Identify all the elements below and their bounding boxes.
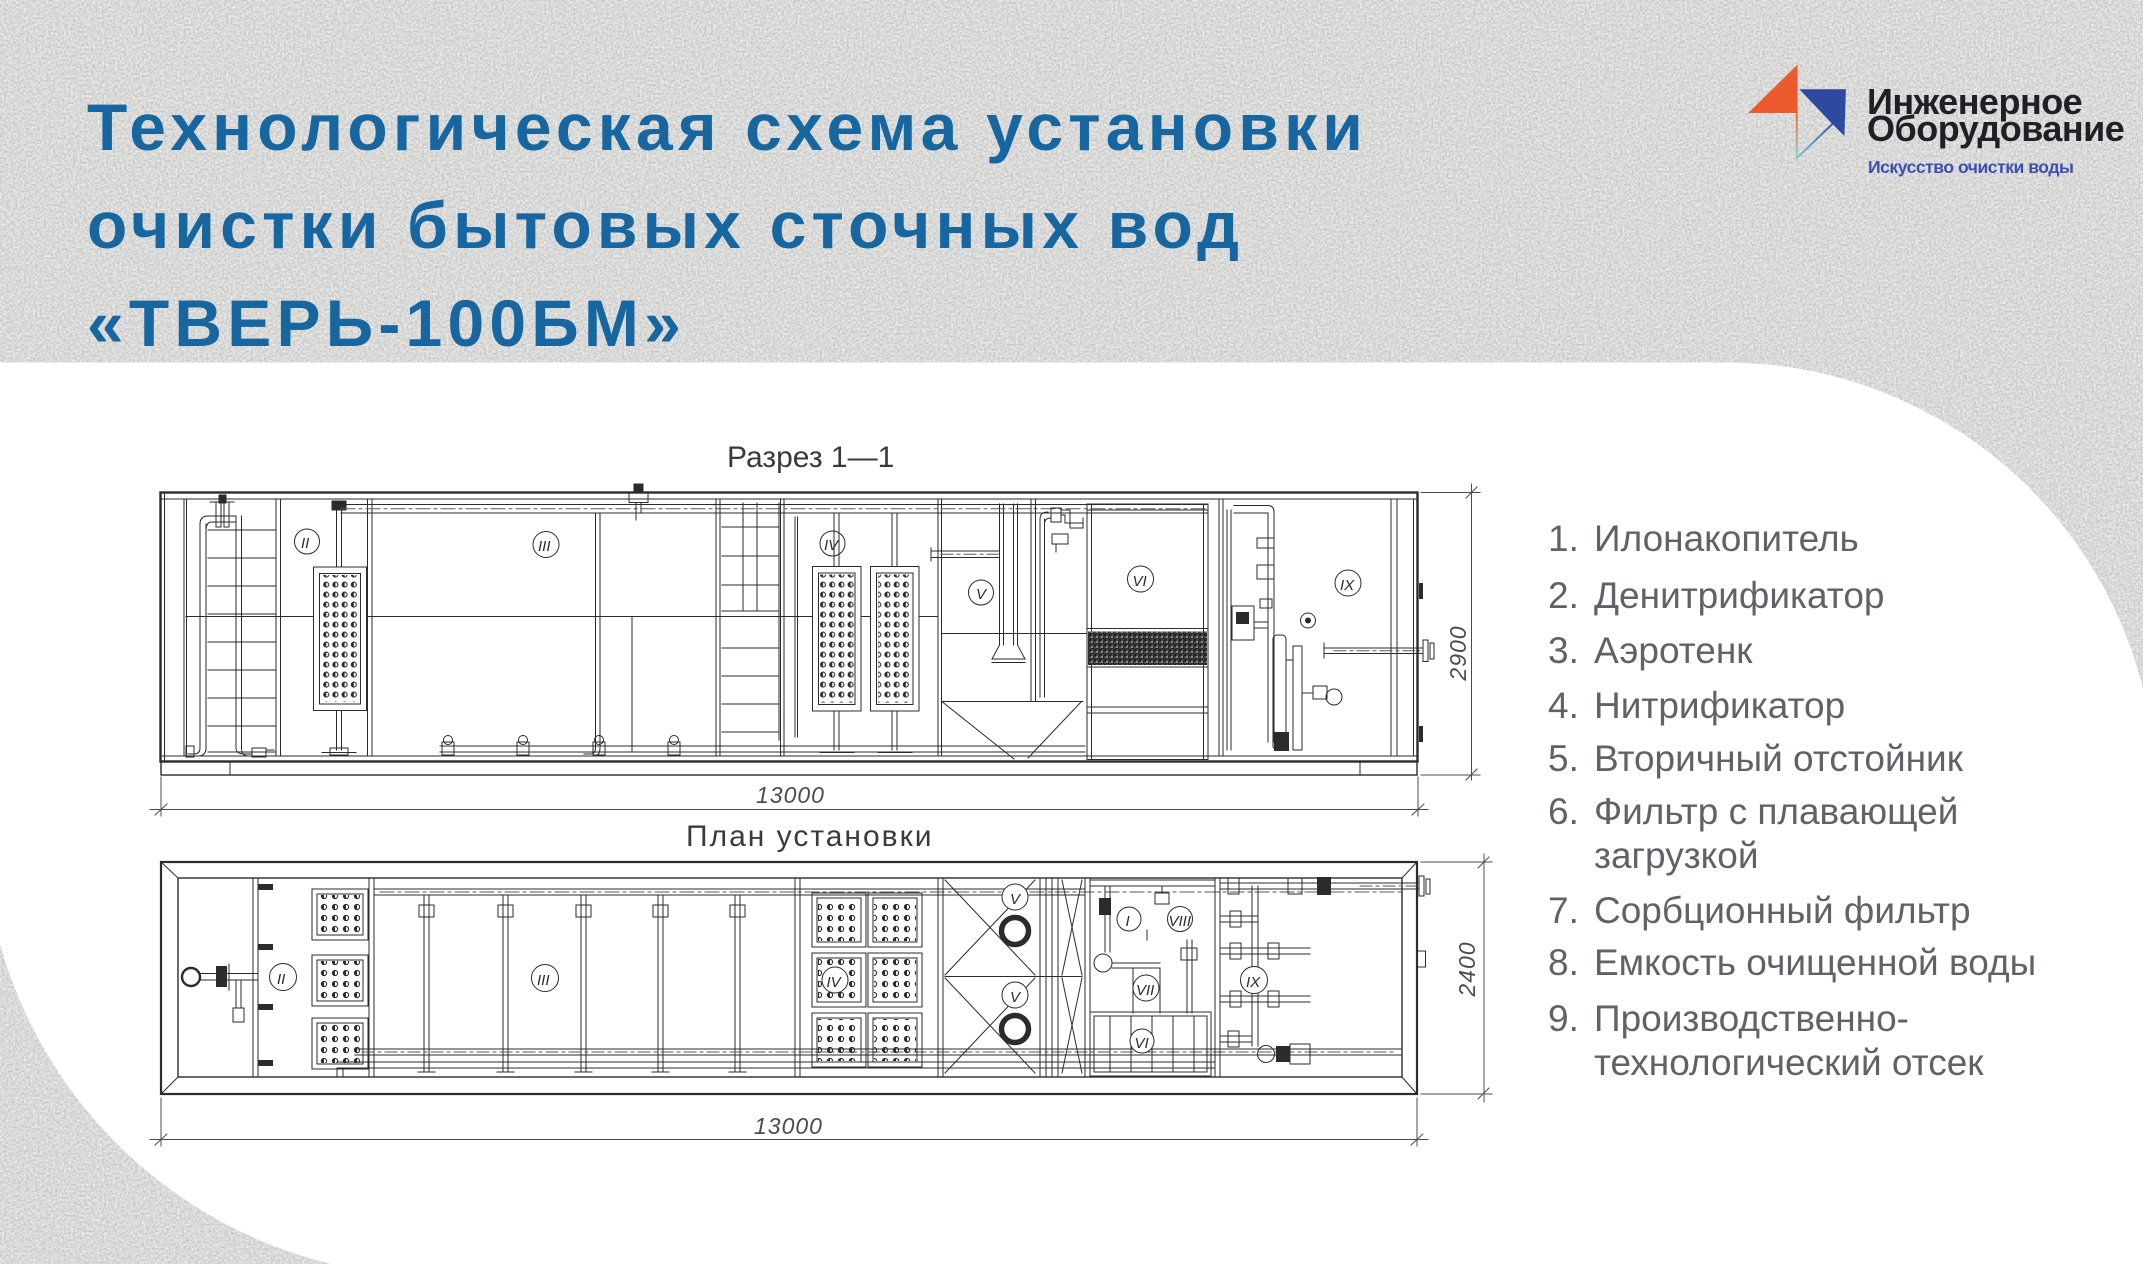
svg-text:IX: IX	[1340, 577, 1355, 594]
svg-text:III: III	[537, 972, 550, 989]
svg-text:План установки: План установки	[686, 820, 933, 853]
svg-text:13000: 13000	[756, 782, 825, 808]
svg-text:13000: 13000	[754, 1113, 823, 1139]
svg-text:VIII: VIII	[1169, 913, 1192, 930]
svg-text:IV: IV	[824, 537, 840, 554]
svg-text:V: V	[976, 586, 988, 603]
svg-text:2900: 2900	[1445, 625, 1471, 681]
svg-text:VI: VI	[1135, 1035, 1149, 1052]
svg-text:II: II	[277, 971, 285, 988]
svg-text:IX: IX	[1246, 974, 1261, 991]
svg-text:IV: IV	[827, 974, 843, 991]
svg-text:I: I	[1126, 913, 1130, 930]
svg-text:VII: VII	[1136, 982, 1154, 999]
svg-text:2400: 2400	[1454, 941, 1480, 997]
svg-text:VI: VI	[1133, 573, 1147, 590]
svg-text:III: III	[538, 538, 551, 555]
svg-text:Разрез 1—1: Разрез 1—1	[727, 441, 894, 474]
svg-text:II: II	[301, 535, 309, 552]
